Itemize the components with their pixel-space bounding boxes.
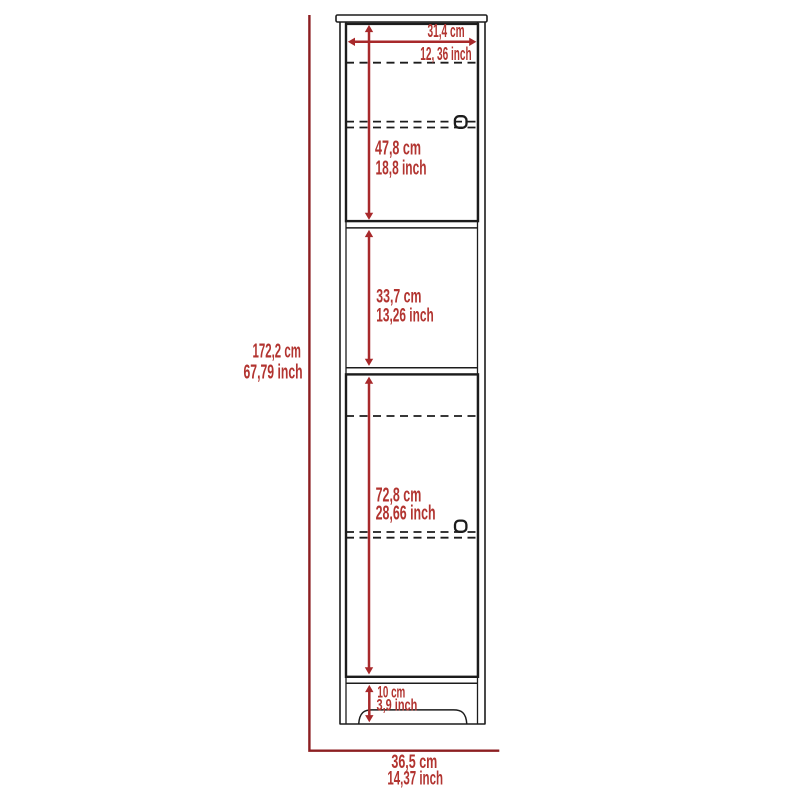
svg-text:13,26 inch: 13,26 inch bbox=[376, 305, 433, 327]
svg-text:67,79 inch: 67,79 inch bbox=[244, 360, 303, 383]
svg-text:14,37 inch: 14,37 inch bbox=[387, 769, 443, 790]
svg-text:31,4 cm: 31,4 cm bbox=[428, 20, 465, 41]
svg-text:12, 36 inch: 12, 36 inch bbox=[420, 43, 471, 64]
svg-text:18,8 inch: 18,8 inch bbox=[376, 158, 427, 180]
svg-text:47,8 cm: 47,8 cm bbox=[375, 138, 421, 160]
svg-text:3,9 inch: 3,9 inch bbox=[377, 696, 418, 715]
svg-text:28,66 inch: 28,66 inch bbox=[376, 502, 436, 524]
svg-text:172,2 cm: 172,2 cm bbox=[253, 340, 301, 363]
